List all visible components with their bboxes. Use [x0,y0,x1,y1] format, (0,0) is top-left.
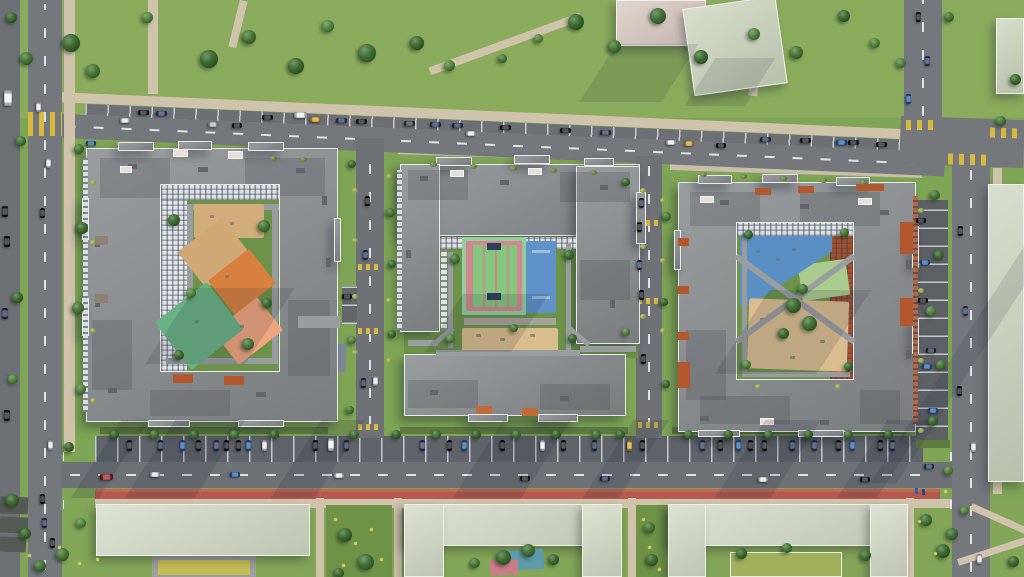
tree [694,50,708,64]
flower-patch [28,554,31,557]
tree [64,442,74,452]
play-equipment [530,334,535,337]
block1-west-facade [83,158,88,412]
parked-car [363,250,368,260]
moving-car [684,141,694,146]
tree [960,506,969,515]
tree [334,568,344,577]
tree [12,292,23,303]
parked-car [916,218,926,223]
hedge-bush [740,174,747,179]
bush [386,298,392,303]
moving-car [230,472,240,477]
parked-car [138,110,149,115]
tree [450,254,460,264]
tree [592,430,601,439]
bush [660,198,666,203]
parked-car [560,128,571,133]
roof-vent [906,260,911,269]
courtyard-path [580,346,636,352]
tree [744,230,753,239]
moving-car [334,473,344,478]
tree [110,430,119,439]
parked-car [800,138,811,143]
block3-east-facade [913,196,918,424]
roof-vent [430,390,438,395]
roof-vent [500,180,509,185]
kindergarten-wing [668,504,706,577]
bush [90,180,96,185]
parked-car [344,440,349,451]
tree [512,430,521,439]
roof-vent [906,350,911,359]
moving-car [361,378,366,388]
tree [804,430,813,439]
flower-patch [354,542,357,545]
parked-car [641,354,646,364]
bush [660,258,666,263]
roof-trim-brick [900,298,914,326]
roof-trim-brick [856,184,884,191]
bush [352,350,358,355]
tree [242,338,254,350]
roof-patch [408,380,478,408]
aerial-residential-render [0,0,1024,577]
parked-car [876,142,887,147]
flower-patch [370,528,373,531]
parked-car [639,290,644,300]
roof-vent [420,176,428,181]
tree [270,430,279,439]
tree [34,560,46,572]
tree [348,336,356,344]
tree [6,12,17,23]
tree [548,554,559,565]
tree [996,116,1006,126]
tree [56,548,69,561]
moving-car [208,122,218,127]
roof-vent [326,258,331,267]
parked-car [262,440,267,451]
garden-path [628,498,636,577]
roof-patch [560,172,630,202]
parked-car [640,440,645,451]
tree [200,50,218,68]
roof-vent [700,416,709,421]
tree [76,384,86,394]
bush [352,294,358,299]
parked-car [627,440,632,451]
tree [72,302,84,314]
tree [840,228,849,237]
tree [522,544,535,557]
hedge-bush [510,166,517,171]
tree [258,220,270,232]
flower-patch [944,490,947,493]
parked-car [922,364,932,369]
parked-car [127,440,132,451]
tree [74,144,84,154]
tree [358,44,376,62]
parked-car [920,260,930,265]
tree [568,14,584,30]
flower-patch [934,552,937,555]
parked-car [540,440,545,451]
moving-car [46,158,51,168]
hedge-bush [590,170,597,175]
parked-car [918,298,928,303]
tree [552,430,561,439]
tree [16,136,26,146]
play-equipment [776,258,780,261]
tree [358,554,374,570]
bicycle [915,488,918,494]
parked-car [637,260,642,270]
tree [388,260,396,268]
block2-stair-tower [436,157,472,166]
parked-car [561,440,566,451]
tree [142,12,153,23]
hedge-bush [430,162,437,167]
tree [76,518,86,528]
tree [928,416,938,426]
tree [386,208,395,217]
bush [835,384,841,389]
tree [622,178,630,186]
tree [930,190,940,200]
bush [918,358,924,363]
crosswalk [28,112,62,136]
parked-car [748,440,753,451]
block3-stair-tower [698,430,740,437]
tree [798,284,808,294]
garden-path [394,498,402,577]
tree [496,550,511,565]
kindergarten-wing [582,504,622,577]
entrance-canopy [522,408,538,416]
parked-car [180,440,185,451]
tree [748,28,760,40]
parked-car [500,440,505,451]
parked-car [637,222,642,232]
moving-car [40,208,45,218]
bush [918,288,924,293]
tree [920,514,932,526]
tree [660,298,668,306]
tree [388,330,396,338]
tree [62,34,80,52]
parked-car [2,308,8,319]
block1-stair-tower [248,142,284,151]
moving-car [42,518,47,528]
roof-patch [150,390,230,416]
tree [20,52,33,65]
crosswalk [948,153,986,165]
roof-trim-brick [900,222,914,254]
tree [684,430,693,439]
tree [186,288,196,298]
tree [510,324,518,332]
left-sidewalk [64,0,75,452]
bush [640,244,646,249]
moving-car [758,477,768,482]
roof-vent [880,210,889,215]
parked-car [214,440,219,451]
bush [90,398,96,403]
play-equipment [225,275,229,278]
parked-car [924,464,934,469]
flower-patch [642,518,645,521]
play-equipment [792,248,796,251]
entrance-canopy [224,376,244,385]
sport-field-goal [487,243,501,250]
parked-car [700,440,705,451]
parked-car [850,440,855,451]
parked-car [404,121,415,126]
play-equipment [210,215,214,218]
hedge-bush [820,178,827,183]
hedge-bush [270,156,277,161]
crosswalk [906,120,938,130]
roof-vent [322,196,327,205]
moving-car [925,56,930,66]
flower-patch [918,520,921,523]
entrance-canopy [678,238,689,246]
entrance-canopy [755,188,771,195]
flower-patch [96,558,99,561]
parked-car [500,125,511,130]
parked-car [313,440,318,451]
speed-bump [358,328,382,334]
tree [6,494,19,507]
parked-car [4,410,10,421]
flower-patch [658,568,661,571]
tree [472,430,481,439]
tree [150,430,159,439]
roof-trim-brick [678,362,690,388]
tree [350,430,359,439]
tree [410,36,424,50]
roof-vent [256,392,266,397]
tree [884,430,893,439]
bush [755,384,761,389]
parked-car [928,408,938,413]
moving-car [958,226,963,236]
tree [644,522,655,533]
crosswalk [990,127,1020,138]
parked-car [639,198,644,208]
bush [90,328,96,333]
tree [288,58,304,74]
parked-car [447,440,452,451]
entrance-canopy [678,286,689,294]
block1-passage [298,316,340,328]
parked-car [342,294,352,299]
tree [608,40,621,53]
tree [936,544,950,558]
bush [352,238,358,243]
moving-car [716,143,726,148]
tree [616,430,625,439]
play-equipment [756,250,760,253]
moving-car [120,118,130,123]
roof-vent [800,204,809,209]
roof-patch [540,384,610,410]
moving-car [40,494,45,504]
entrance-box [95,294,108,303]
block2-west-facade [397,170,402,330]
parked-car [310,117,321,122]
parked-car [718,440,723,451]
garden [636,505,668,577]
tree [782,543,792,553]
flower-patch [58,546,61,549]
parked-car [224,440,229,451]
hedge-bush [860,180,867,185]
flower-patch [78,562,81,565]
tree [174,350,184,360]
moving-car [36,102,41,112]
kinder-field [730,552,842,577]
kindergarten-wing [870,504,908,577]
bush [386,174,392,179]
roof-patch [288,300,330,376]
tree [242,30,256,44]
parked-car [592,440,597,451]
play-equipment [230,222,234,225]
speed-bump [358,264,382,270]
inner-street-dashes [648,166,650,428]
tree [736,548,747,559]
garage-roof [0,537,26,553]
hedge-bush [700,172,707,177]
tree [190,430,199,439]
tree [786,298,801,313]
block1-north-facade [161,185,279,200]
parked-car [420,440,425,451]
right-road-lower-dashes [970,168,972,572]
sport-court [158,560,250,575]
parked-car [600,130,611,135]
bush [640,314,646,319]
tree [392,430,401,439]
tree [498,54,507,63]
parked-car [430,122,441,127]
parked-car [760,137,771,142]
parked-car [878,440,883,451]
roof-patch [580,260,630,300]
roof-vent [610,300,615,308]
tree [802,316,817,331]
flower-patch [334,518,337,521]
roof-vent [108,388,117,393]
far-left-lane [0,0,20,577]
parked-car [452,123,463,128]
tree [230,430,239,439]
roof-vent [820,420,829,425]
tree [20,528,31,539]
left-road-dashes [44,4,46,570]
roof-patch [860,390,900,424]
parked-car [158,440,163,451]
moving-car [971,442,976,452]
tree [650,8,666,24]
bush [918,428,924,433]
block1-stair-tower [118,142,154,151]
roof-patch [92,320,132,390]
block2-stair-tower [514,155,550,164]
school-building [96,504,310,556]
block1-stair-tower [334,218,341,262]
tree [844,362,853,371]
moving-car [232,123,242,128]
roof-hatch [120,166,132,173]
block3-stair-tower [674,230,681,270]
moving-car [860,477,870,482]
tree [568,334,577,343]
tree [936,360,946,370]
moving-car [50,538,55,548]
moving-car [916,12,921,22]
tree [742,360,751,369]
parking-pocket [342,286,357,324]
moving-car [977,554,982,564]
tree [322,20,334,32]
tree [1008,556,1019,567]
hedge-bush [550,168,557,173]
tree [944,12,954,22]
block3-north-facade [737,223,853,236]
parked-car [365,196,370,206]
flower-patch [648,546,651,549]
hedge-bush [780,176,787,181]
flower-patch [380,558,383,561]
bush [386,358,392,363]
parked-car [356,119,367,124]
roof-vent [296,168,305,173]
tree [944,466,953,475]
parked-van [328,438,334,451]
roof-vent [198,167,208,172]
tree [1010,74,1021,85]
roof-vent [720,200,729,205]
parked-car [812,440,817,451]
moving-car [957,386,962,396]
tree [860,550,871,561]
moving-car [520,476,530,481]
tree [168,214,180,226]
bicycle [922,489,925,495]
tree [8,374,18,384]
entrance-canopy [798,186,814,193]
roof-vent [406,250,411,258]
parked-car [926,348,936,353]
tree [844,430,853,439]
parked-car [336,118,347,123]
bus [4,90,12,106]
parked-car [86,141,96,146]
right-road-upper-dashes [922,0,924,116]
moving-car [600,476,610,481]
tree [662,212,671,221]
inner-street-dashes [369,150,371,426]
bush [640,188,646,193]
tree [646,554,658,566]
tree [896,58,906,68]
block2-stair-tower [584,158,614,166]
hedge-bush [470,164,477,169]
tree [534,34,543,43]
